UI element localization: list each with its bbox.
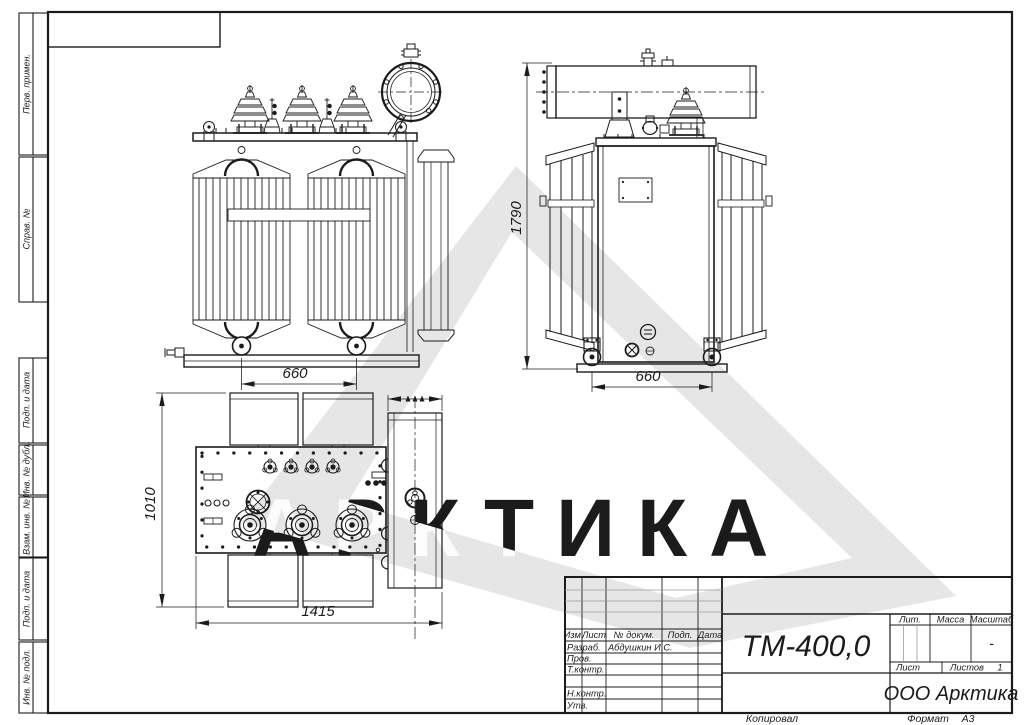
radiator-tie-band <box>228 209 370 221</box>
drain-valve <box>165 348 184 357</box>
sheets-value: 1 <box>997 663 1002 673</box>
conservator-end-view <box>378 44 444 137</box>
footer-margin: Копировал Формат А3 <box>746 713 975 725</box>
dim-side-width: 660 <box>635 368 661 385</box>
mass-label: Масса <box>937 615 965 625</box>
lifting-lug <box>204 122 215 142</box>
scale-value: - <box>989 635 994 651</box>
left-stamp-labels: Перв. примен. Справ. № Подп. и дата Инв.… <box>22 54 32 705</box>
col-sign: Подп. <box>668 630 693 640</box>
stamp-vzam-inv: Взам. инв. № <box>22 499 32 555</box>
thermometer-fitting <box>642 116 669 135</box>
stamp-perv-primen: Перв. примен. <box>22 54 32 114</box>
col-list: Лист <box>581 630 606 640</box>
stamp-podp-data-2: Подп. и дата <box>22 571 32 627</box>
row-ncontrol: Н.контр. <box>567 689 606 699</box>
format-value: А3 <box>961 713 975 725</box>
stamp-sprav-no: Справ. № <box>22 208 32 249</box>
lit-label: Лит. <box>898 615 921 625</box>
stamp-inv-dubl: Инв. № дубл. <box>22 442 32 497</box>
row-approved: Утв. <box>566 701 588 711</box>
dim-top-length: 1415 <box>301 603 335 620</box>
breather-icon <box>640 49 656 66</box>
col-izm: Изм. <box>564 630 584 640</box>
sheet-label: Лист <box>895 663 920 673</box>
nameplate <box>619 178 652 202</box>
row-tcontrol: Т.контр. <box>567 665 605 675</box>
developer-name: Абдушкин И.С. <box>607 643 673 653</box>
copied-label: Копировал <box>746 713 798 725</box>
drawing-canvas: АРКТИКА АРКТИКА Перв. примен. Справ. № П <box>0 0 1024 725</box>
row-developed: Разраб. <box>567 643 601 653</box>
top-left-stamp-box <box>48 12 220 47</box>
engineering-drawing-sheet: АРКТИКА АРКТИКА Перв. примен. Справ. № П <box>0 0 1024 725</box>
conservator-tank <box>536 49 764 138</box>
row-checked: Пров. <box>567 654 592 664</box>
dim-front-width: 660 <box>282 365 308 382</box>
radiator-side-right <box>718 143 772 351</box>
format-label: Формат <box>907 713 949 725</box>
conservator-bracket <box>605 92 634 137</box>
sheets-label: Листов <box>949 663 984 673</box>
scale-label: Масштаб <box>970 615 1014 625</box>
stamp-inv-podl: Инв. № подл. <box>22 649 32 705</box>
dim-side-height: 1790 <box>508 201 525 235</box>
switch-drive-plan <box>247 491 270 514</box>
col-docnum: № докум. <box>614 630 655 640</box>
col-date: Дата <box>697 630 723 640</box>
company-name: ООО Арктика <box>884 683 1019 705</box>
dim-top-height: 1010 <box>142 487 159 521</box>
stamp-podp-data-1: Подп. и дата <box>22 372 32 428</box>
designation: ТМ-400,0 <box>742 630 871 663</box>
